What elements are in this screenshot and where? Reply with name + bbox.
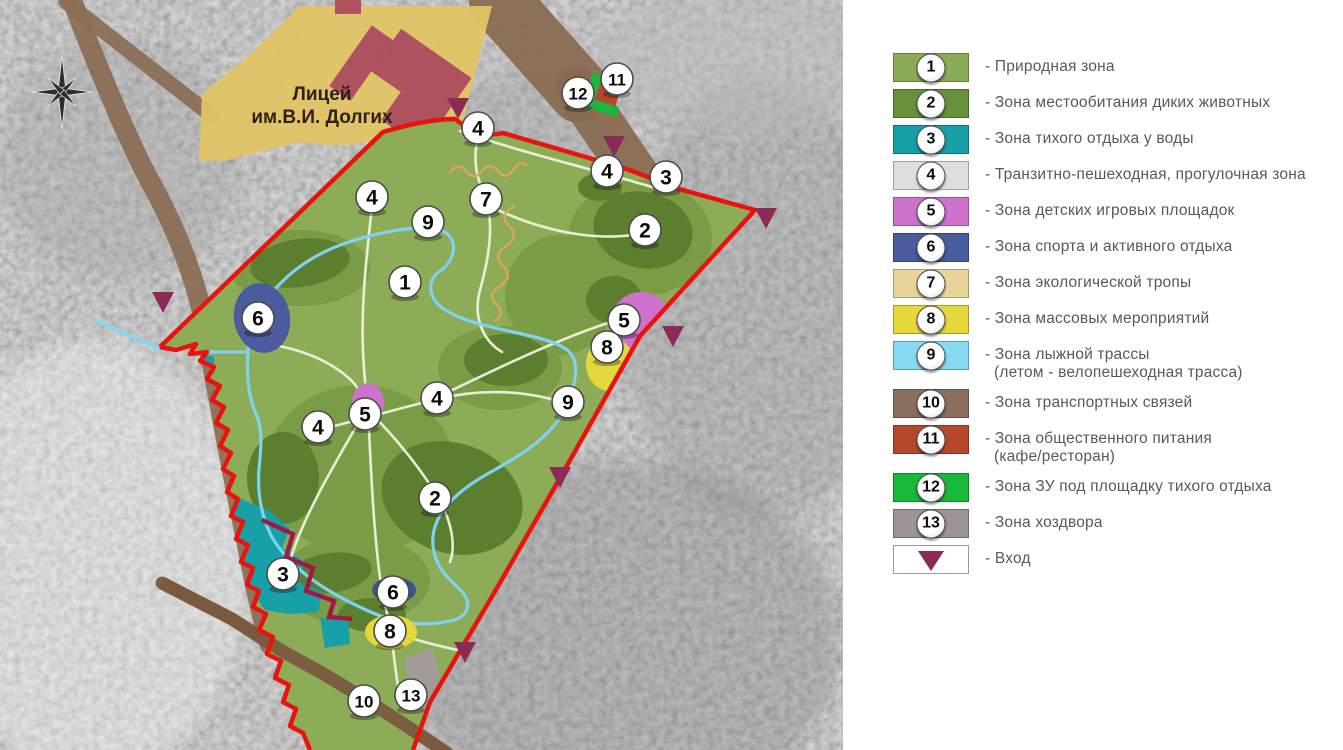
zone-number-badge: 12 (917, 473, 946, 502)
svg-text:1: 1 (399, 272, 411, 295)
zone-swatch: 8 (893, 305, 969, 334)
legend-row: 13 - Зона хоздвора (893, 509, 1343, 538)
zone-number-badge: 8 (917, 305, 946, 334)
entrance-label: - Вход (985, 545, 1031, 568)
svg-text:2: 2 (639, 220, 651, 243)
map-marker-8: 8 (591, 331, 623, 366)
svg-text:9: 9 (422, 212, 434, 235)
zone-label: - Зона лыжной трассы(летом - велопешеход… (985, 341, 1243, 382)
zone-label: - Зона общественного питания(кафе/рестор… (985, 425, 1212, 466)
legend-row: 5 - Зона детских игровых площадок (893, 197, 1343, 226)
svg-text:4: 4 (366, 187, 378, 210)
svg-text:4: 4 (472, 118, 484, 141)
svg-text:4: 4 (312, 417, 324, 440)
zone-swatch: 3 (893, 125, 969, 154)
zone-swatch: 5 (893, 197, 969, 226)
map-marker-13: 13 (395, 679, 427, 714)
legend-row: 8 - Зона массовых мероприятий (893, 305, 1343, 334)
svg-text:7: 7 (480, 189, 492, 212)
zone-swatch: 12 (893, 473, 969, 502)
map-marker-9: 9 (552, 386, 584, 421)
zone-number-badge: 10 (917, 389, 946, 418)
map-marker-4: 4 (302, 411, 334, 446)
legend-row-entrance: - Вход (893, 545, 1343, 574)
svg-text:6: 6 (387, 582, 399, 605)
legend-row: 2 - Зона местообитания диких животных (893, 89, 1343, 118)
svg-text:Лицей: Лицей (293, 84, 352, 105)
zone-swatch: 6 (893, 233, 969, 262)
map-marker-4: 4 (421, 382, 453, 417)
legend-panel: 1 - Природная зона 2 - Зона местообитани… (843, 0, 1343, 750)
zone-label: - Зона массовых мероприятий (985, 305, 1209, 328)
legend-row: 1 - Природная зона (893, 53, 1343, 82)
map-marker-9: 9 (412, 206, 444, 241)
map-marker-5: 5 (349, 398, 381, 433)
zone-label: - Зона экологической тропы (985, 269, 1191, 292)
entrance-swatch (893, 545, 969, 574)
svg-text:10: 10 (355, 693, 374, 712)
zone-number-badge: 11 (917, 425, 946, 454)
zone-number-badge: 3 (917, 125, 946, 154)
map-marker-3: 3 (267, 558, 299, 593)
map-marker-10: 10 (348, 685, 380, 720)
map-marker-4: 4 (591, 155, 623, 190)
svg-text:5: 5 (359, 404, 371, 427)
svg-text:3: 3 (277, 564, 289, 587)
svg-text:8: 8 (601, 337, 613, 360)
svg-text:11: 11 (608, 71, 626, 90)
map-marker-6: 6 (377, 576, 409, 611)
zone-label: - Зона транспортных связей (985, 389, 1192, 412)
svg-text:4: 4 (431, 388, 443, 411)
svg-text:5: 5 (618, 310, 630, 333)
svg-text:12: 12 (569, 85, 588, 104)
zone-swatch: 1 (893, 53, 969, 82)
zone-label: - Зона детских игровых площадок (985, 197, 1235, 220)
map-marker-3: 3 (650, 161, 682, 196)
map-marker-2: 2 (419, 482, 451, 517)
zone-number-badge: 7 (917, 269, 946, 298)
legend-row: 4 - Транзитно-пешеходная, прогулочная зо… (893, 161, 1343, 190)
legend-row: 11 - Зона общественного питания(кафе/рес… (893, 425, 1343, 466)
zone-number-badge: 9 (917, 341, 946, 370)
zone-swatch: 7 (893, 269, 969, 298)
map-marker-6: 6 (242, 302, 274, 337)
svg-text:3: 3 (660, 167, 672, 190)
svg-text:9: 9 (562, 392, 574, 415)
zone-swatch: 9 (893, 341, 969, 370)
legend-row: 12 - Зона ЗУ под площадку тихого отдыха (893, 473, 1343, 502)
zone-number-badge: 1 (917, 53, 946, 82)
legend-row: 7 - Зона экологической тропы (893, 269, 1343, 298)
map-marker-11: 11 (601, 63, 633, 98)
zone-label: - Зона хоздвора (985, 509, 1103, 532)
legend-row: 6 - Зона спорта и активного отдыха (893, 233, 1343, 262)
zone-swatch: 10 (893, 389, 969, 418)
zone-label: - Зона ЗУ под площадку тихого отдыха (985, 473, 1272, 496)
zone-swatch: 4 (893, 161, 969, 190)
map-area: Лицей им.В.И. Долгих 4121143249716589454… (0, 0, 843, 750)
zone-number-badge: 6 (917, 233, 946, 262)
map-marker-12: 12 (562, 77, 594, 112)
map-marker-7: 7 (470, 183, 502, 218)
zone-number-badge: 5 (917, 197, 946, 226)
svg-text:им.В.И. Долгих: им.В.И. Долгих (251, 107, 393, 128)
legend-row: 3 - Зона тихого отдыха у воды (893, 125, 1343, 154)
zone-label: - Природная зона (985, 53, 1115, 76)
map-marker-8: 8 (374, 615, 406, 650)
map-marker-1: 1 (389, 266, 421, 301)
map-marker-4: 4 (462, 112, 494, 147)
zone-label: - Зона тихого отдыха у воды (985, 125, 1194, 148)
entrance-triangle-icon (918, 551, 944, 571)
svg-text:13: 13 (402, 687, 421, 706)
zone-label: - Зона спорта и активного отдыха (985, 233, 1232, 256)
map-marker-2: 2 (629, 214, 661, 249)
park-zoning-plan: Лицей им.В.И. Долгих 4121143249716589454… (0, 0, 1343, 750)
zone-label: - Транзитно-пешеходная, прогулочная зона (985, 161, 1306, 184)
svg-text:8: 8 (384, 621, 396, 644)
svg-text:6: 6 (252, 308, 264, 331)
svg-text:2: 2 (429, 488, 441, 511)
map-marker-4: 4 (356, 181, 388, 216)
zone-number-badge: 4 (917, 161, 946, 190)
svg-text:4: 4 (601, 161, 613, 184)
zone-swatch: 2 (893, 89, 969, 118)
zone-swatch: 11 (893, 425, 969, 454)
zone-number-badge: 13 (917, 509, 946, 538)
zone-label: - Зона местообитания диких животных (985, 89, 1270, 112)
zone-number-badge: 2 (917, 89, 946, 118)
zone-swatch: 13 (893, 509, 969, 538)
legend-row: 10 - Зона транспортных связей (893, 389, 1343, 418)
map-svg: Лицей им.В.И. Долгих 4121143249716589454… (0, 0, 843, 750)
legend-row: 9 - Зона лыжной трассы(летом - велопешех… (893, 341, 1343, 382)
